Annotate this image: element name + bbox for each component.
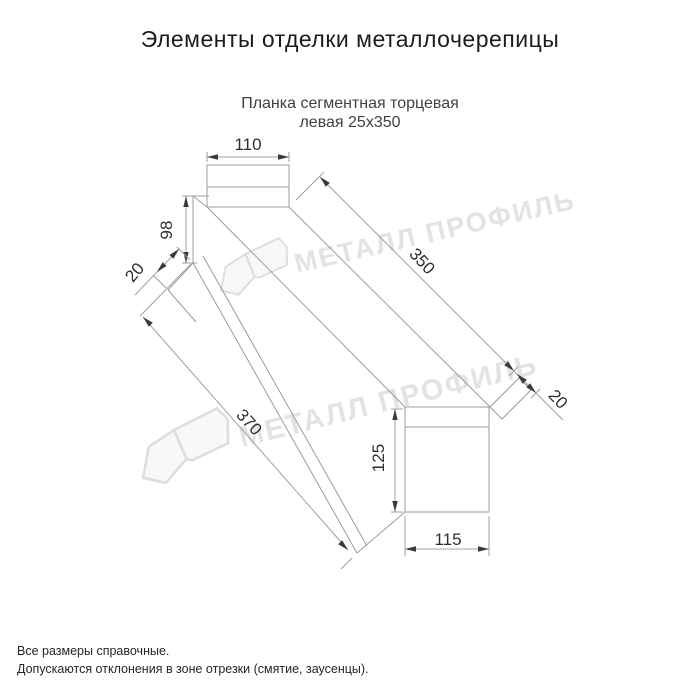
dim-115: 115 xyxy=(405,516,489,556)
dim-125: 125 xyxy=(369,409,403,512)
watermark-upper: МЕТАЛЛ ПРОФИЛЬ xyxy=(212,171,578,298)
drawing-page: { "title": "Элементы отделки металлочере… xyxy=(0,0,700,700)
footer-note-1: Все размеры справочные. xyxy=(17,642,369,660)
dim-115-label: 115 xyxy=(434,530,461,549)
dim-110-label: 110 xyxy=(234,135,261,154)
dim-20-left-label: 20 xyxy=(121,259,148,286)
footer-notes: Все размеры справочные. Допускаются откл… xyxy=(17,642,369,678)
dim-20-right-label: 20 xyxy=(545,386,572,413)
dim-98-label: 98 xyxy=(157,221,176,240)
metall-profil-logo-icon xyxy=(212,237,294,298)
dim-20-right: 20 xyxy=(509,367,571,420)
technical-drawing: МЕТАЛЛ ПРОФИЛЬ МЕТАЛЛ ПРОФИЛЬ xyxy=(0,0,700,700)
dim-125-label: 125 xyxy=(369,444,388,472)
dim-20-left: 20 xyxy=(121,247,190,295)
dim-110: 110 xyxy=(207,135,289,162)
metall-profil-logo-icon xyxy=(131,407,239,488)
footer-note-2: Допускаются отклонения в зоне отрезки (с… xyxy=(17,660,369,678)
watermark-lower: МЕТАЛЛ ПРОФИЛЬ xyxy=(131,331,543,488)
